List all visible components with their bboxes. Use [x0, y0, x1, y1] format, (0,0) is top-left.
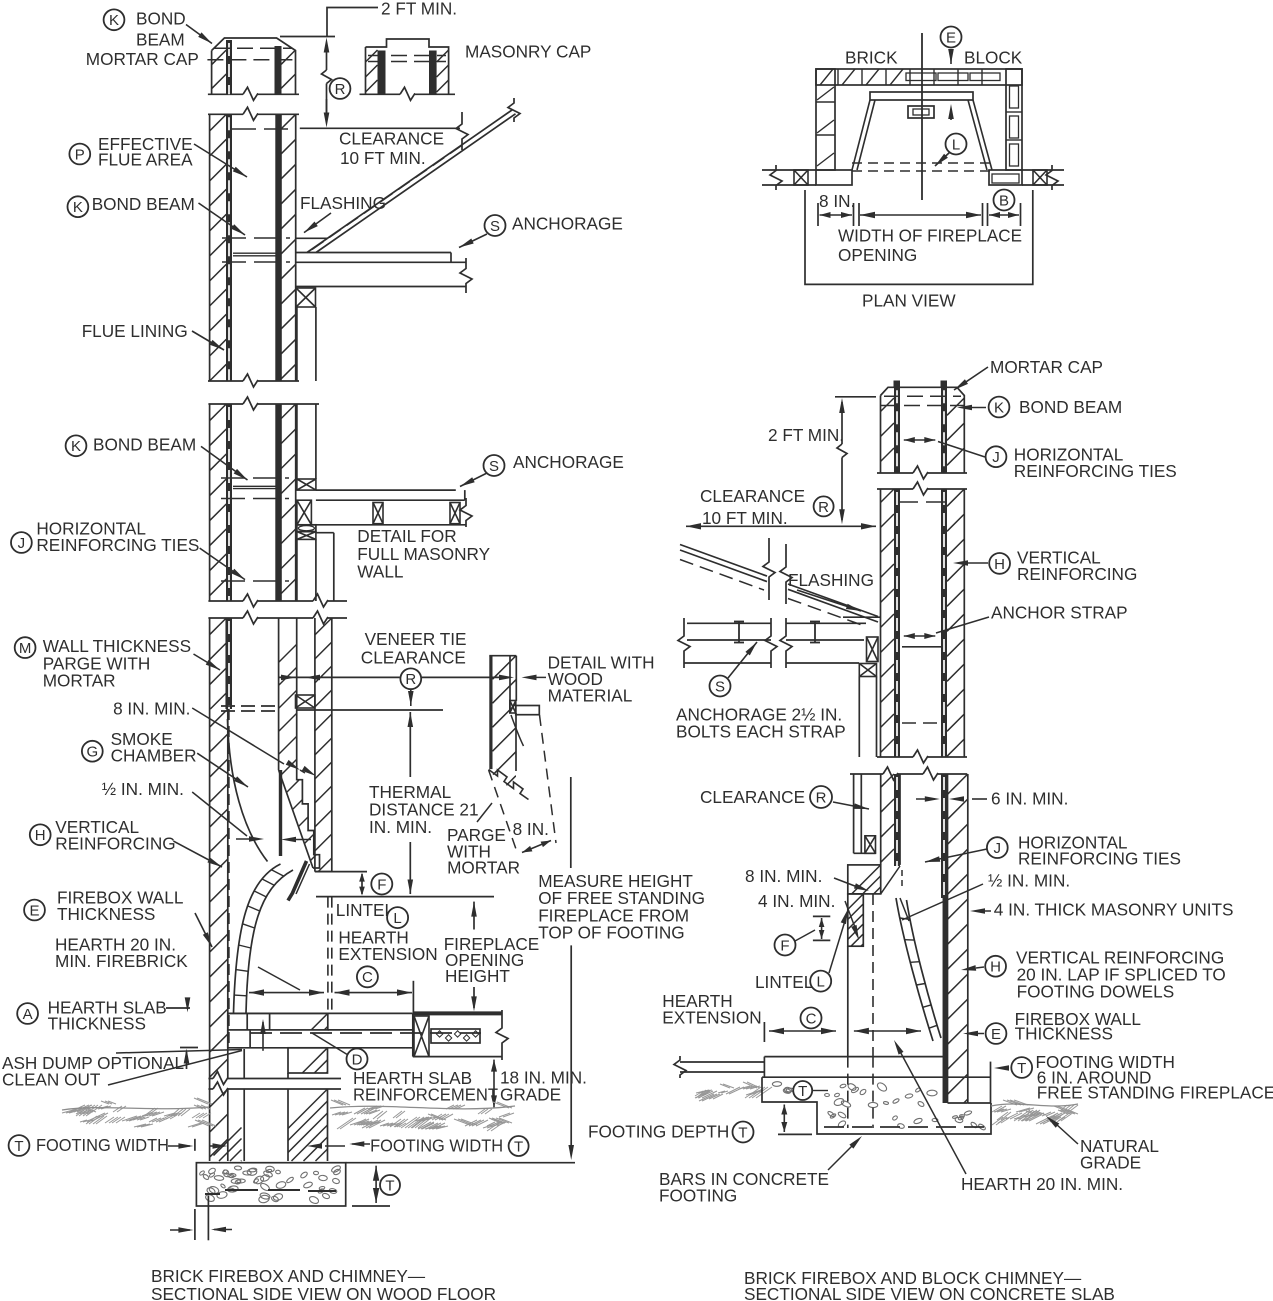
svg-text:J: J: [992, 449, 1000, 466]
svg-text:FLUE LINING: FLUE LINING: [82, 321, 188, 341]
svg-text:FLASHING: FLASHING: [788, 570, 874, 590]
svg-text:CLEARANCE: CLEARANCE: [361, 647, 466, 667]
svg-text:R: R: [816, 789, 827, 806]
svg-text:FOOTING DEPTH: FOOTING DEPTH: [588, 1122, 729, 1142]
svg-text:FOOTING DOWELS: FOOTING DOWELS: [1017, 982, 1175, 1002]
svg-text:K: K: [109, 12, 119, 29]
svg-text:THICKNESS: THICKNESS: [1015, 1024, 1113, 1044]
svg-text:REINFORCING TIES: REINFORCING TIES: [1018, 849, 1181, 869]
svg-text:L: L: [393, 910, 401, 927]
svg-text:BLOCK: BLOCK: [964, 48, 1023, 68]
svg-text:REINFORCING TIES: REINFORCING TIES: [1014, 461, 1177, 481]
svg-text:MORTAR CAP: MORTAR CAP: [86, 49, 199, 69]
svg-text:A: A: [23, 1006, 33, 1023]
svg-text:BOLTS EACH STRAP: BOLTS EACH STRAP: [676, 722, 846, 742]
svg-text:E: E: [946, 29, 956, 46]
svg-text:2 FT MIN.: 2 FT MIN.: [381, 0, 457, 19]
svg-text:BOND BEAM: BOND BEAM: [92, 194, 195, 214]
svg-text:T: T: [738, 1124, 747, 1141]
svg-text:BEAM: BEAM: [136, 30, 185, 50]
svg-text:LINTEL: LINTEL: [755, 972, 813, 992]
svg-text:L: L: [952, 136, 960, 153]
svg-text:WIDTH OF FIREPLACE: WIDTH OF FIREPLACE: [838, 226, 1022, 246]
svg-text:VENEER TIE: VENEER TIE: [365, 629, 467, 649]
svg-text:T: T: [798, 1083, 807, 1100]
svg-text:4 IN. MIN.: 4 IN. MIN.: [758, 891, 835, 911]
svg-text:MORTAR: MORTAR: [447, 858, 520, 878]
svg-text:2 FT MIN.: 2 FT MIN.: [768, 425, 844, 445]
svg-text:CLEAN OUT: CLEAN OUT: [2, 1069, 101, 1089]
svg-text:C: C: [362, 969, 373, 986]
svg-text:TOP OF FOOTING: TOP OF FOOTING: [538, 922, 684, 942]
svg-text:OPENING: OPENING: [838, 245, 917, 265]
svg-text:MIN. FIREBRICK: MIN. FIREBRICK: [55, 951, 188, 971]
svg-text:8 IN.: 8 IN.: [513, 819, 549, 839]
svg-text:T: T: [1017, 1060, 1026, 1077]
svg-text:S: S: [490, 218, 500, 235]
svg-text:FOOTING WIDTH: FOOTING WIDTH: [370, 1135, 503, 1155]
svg-text:T: T: [514, 1138, 523, 1155]
svg-text:FREE STANDING FIREPLACE: FREE STANDING FIREPLACE: [1037, 1083, 1273, 1103]
svg-text:E: E: [29, 902, 39, 919]
svg-text:J: J: [18, 535, 26, 552]
svg-text:K: K: [73, 199, 83, 216]
svg-text:MASONRY CAP: MASONRY CAP: [465, 42, 591, 62]
svg-text:CLEARANCE: CLEARANCE: [339, 129, 444, 149]
svg-text:D: D: [352, 1051, 363, 1068]
svg-text:B: B: [999, 192, 1009, 209]
svg-text:½ IN. MIN.: ½ IN. MIN.: [988, 871, 1070, 891]
svg-text:H: H: [994, 556, 1005, 573]
svg-text:CLEARANCE: CLEARANCE: [700, 787, 805, 807]
svg-text:MORTAR CAP: MORTAR CAP: [990, 357, 1103, 377]
svg-text:R: R: [405, 671, 416, 688]
svg-text:K: K: [994, 399, 1004, 416]
svg-text:FLUE AREA: FLUE AREA: [98, 150, 193, 170]
svg-text:MORTAR: MORTAR: [43, 671, 116, 691]
svg-text:ANCHORAGE: ANCHORAGE: [512, 214, 623, 234]
svg-text:BRICK FIREBOX AND CHIMNEY—: BRICK FIREBOX AND CHIMNEY—: [151, 1266, 426, 1286]
svg-text:F: F: [377, 876, 386, 893]
svg-text:REINFORCING: REINFORCING: [1017, 564, 1137, 584]
svg-text:REINFORCEMENT: REINFORCEMENT: [353, 1084, 498, 1104]
svg-text:P: P: [75, 146, 85, 163]
svg-text:ANCHOR STRAP: ANCHOR STRAP: [991, 603, 1128, 623]
svg-text:THICKNESS: THICKNESS: [57, 904, 155, 924]
svg-text:WALL: WALL: [357, 562, 403, 582]
svg-text:SECTIONAL SIDE VIEW ON CONCRET: SECTIONAL SIDE VIEW ON CONCRETE SLAB: [744, 1284, 1115, 1301]
svg-text:HEIGHT: HEIGHT: [445, 966, 510, 986]
svg-text:10 FT MIN.: 10 FT MIN.: [702, 508, 788, 528]
svg-text:BOND BEAM: BOND BEAM: [1019, 397, 1122, 417]
svg-text:CHAMBER: CHAMBER: [111, 745, 197, 765]
svg-text:EXTENSION: EXTENSION: [338, 944, 437, 964]
svg-text:S: S: [489, 458, 499, 475]
svg-text:GRADE: GRADE: [1080, 1152, 1141, 1172]
svg-text:BOND BEAM: BOND BEAM: [93, 435, 196, 455]
svg-text:ANCHORAGE: ANCHORAGE: [513, 452, 624, 472]
svg-text:S: S: [715, 678, 725, 695]
svg-text:C: C: [806, 1010, 817, 1027]
svg-text:R: R: [818, 499, 829, 516]
svg-text:HEARTH 20 IN. MIN.: HEARTH 20 IN. MIN.: [961, 1174, 1123, 1194]
svg-text:THICKNESS: THICKNESS: [48, 1014, 146, 1034]
svg-text:K: K: [71, 438, 81, 455]
svg-text:PLAN VIEW: PLAN VIEW: [862, 291, 956, 311]
svg-text:F: F: [780, 937, 789, 954]
svg-text:T: T: [14, 1138, 23, 1155]
svg-text:8 IN. MIN.: 8 IN. MIN.: [745, 866, 822, 886]
svg-text:8 IN.: 8 IN.: [819, 191, 855, 211]
svg-text:CLEARANCE: CLEARANCE: [700, 486, 805, 506]
svg-text:H: H: [35, 827, 46, 844]
svg-text:FLASHING: FLASHING: [300, 193, 386, 213]
svg-text:IN. MIN.: IN. MIN.: [369, 817, 432, 837]
svg-text:G: G: [86, 744, 98, 761]
svg-text:REINFORCING TIES: REINFORCING TIES: [36, 535, 199, 555]
svg-text:M: M: [19, 640, 32, 657]
svg-text:BRICK: BRICK: [845, 48, 898, 68]
svg-text:T: T: [385, 1177, 394, 1194]
svg-text:H: H: [990, 959, 1001, 976]
svg-text:FOOTING WIDTH: FOOTING WIDTH: [36, 1135, 169, 1155]
svg-text:R: R: [335, 81, 346, 98]
svg-text:8 IN. MIN.: 8 IN. MIN.: [113, 699, 190, 719]
svg-text:LINTEL: LINTEL: [336, 900, 394, 920]
svg-text:SECTIONAL SIDE VIEW ON WOOD FL: SECTIONAL SIDE VIEW ON WOOD FLOOR: [151, 1284, 496, 1301]
svg-text:4 IN. THICK MASONRY UNITS: 4 IN. THICK MASONRY UNITS: [994, 899, 1234, 919]
svg-text:10 FT MIN.: 10 FT MIN.: [340, 148, 426, 168]
svg-text:6 IN. MIN.: 6 IN. MIN.: [991, 789, 1068, 809]
svg-text:MATERIAL: MATERIAL: [548, 686, 633, 706]
svg-text:REINFORCING: REINFORCING: [55, 833, 175, 853]
svg-text:E: E: [991, 1026, 1001, 1043]
svg-text:EXTENSION: EXTENSION: [662, 1007, 761, 1027]
svg-text:GRADE: GRADE: [500, 1084, 561, 1104]
svg-text:½ IN. MIN.: ½ IN. MIN.: [102, 779, 184, 799]
svg-text:FOOTING: FOOTING: [659, 1185, 737, 1205]
svg-text:BOND: BOND: [136, 9, 186, 29]
svg-text:J: J: [994, 840, 1002, 857]
svg-text:L: L: [817, 974, 825, 991]
